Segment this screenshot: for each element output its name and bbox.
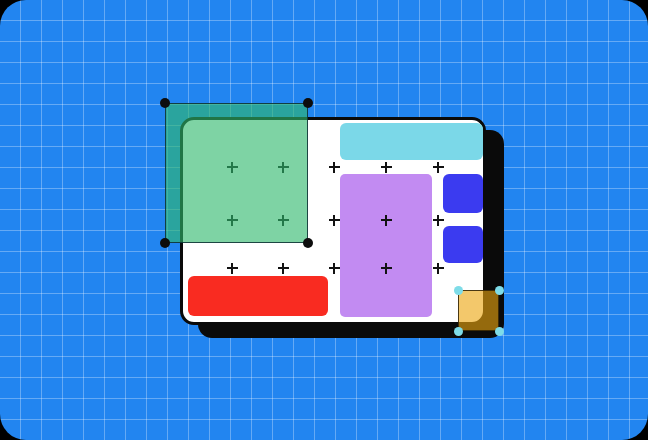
illustration-canvas	[0, 0, 648, 440]
artboard[interactable]	[180, 117, 486, 325]
